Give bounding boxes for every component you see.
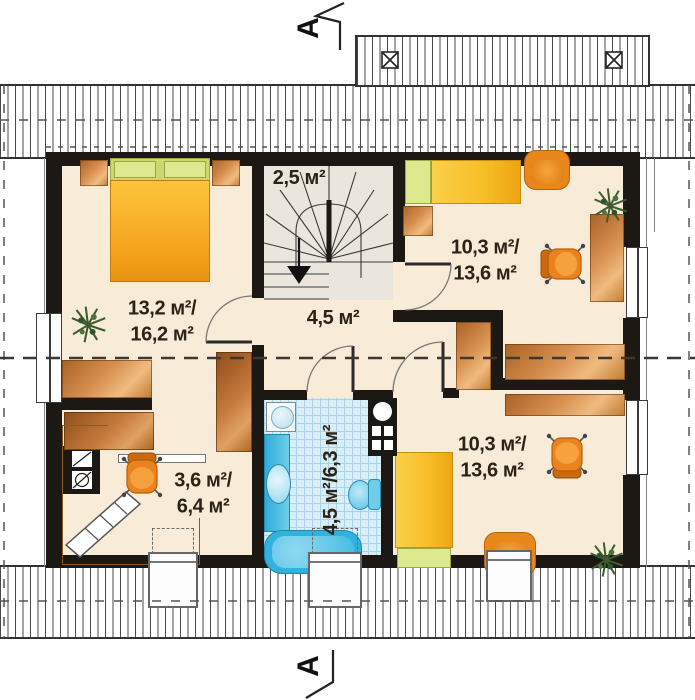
window-right-lower bbox=[626, 400, 648, 475]
washing-machine-drum bbox=[271, 406, 294, 429]
wall-segment bbox=[46, 403, 62, 568]
area-line: 13,2 м²/ bbox=[128, 298, 196, 320]
bathroom-area-label: 4,5 м²/6,3 м² bbox=[318, 425, 344, 535]
window-left bbox=[36, 313, 62, 403]
wall-segment bbox=[252, 166, 264, 298]
nightstand bbox=[212, 160, 240, 186]
wall-segment bbox=[393, 310, 503, 322]
skylight-dashed bbox=[152, 528, 194, 554]
roof-edge bbox=[0, 565, 46, 567]
section-marker-top: A bbox=[292, 17, 326, 39]
tall-wardrobe bbox=[216, 352, 252, 452]
vent-grid-icon bbox=[372, 426, 381, 436]
roof-valley-line bbox=[654, 158, 655, 232]
pillow bbox=[405, 160, 431, 204]
area-line: 6,4 м² bbox=[174, 494, 232, 520]
area-line: 16,2 м² bbox=[128, 322, 196, 348]
vent-grid-icon bbox=[384, 426, 393, 436]
pillow bbox=[164, 161, 206, 178]
long-desk bbox=[505, 344, 625, 380]
wall-segment bbox=[252, 345, 264, 568]
office-shelf bbox=[118, 454, 206, 463]
wall-segment bbox=[62, 398, 152, 410]
bedroom-area-label: 13,2 м²/ 16,2 м² bbox=[128, 296, 196, 349]
nightstand bbox=[403, 206, 433, 236]
area-line: 3,6 м²/ bbox=[174, 470, 232, 492]
roof-hatch-top bbox=[0, 85, 695, 158]
armchair bbox=[524, 150, 570, 190]
pillow bbox=[397, 548, 451, 568]
roof-skylight bbox=[486, 550, 532, 602]
area-line: 10,3 м²/ bbox=[451, 237, 519, 259]
area-line: 10,3 м²/ bbox=[458, 434, 526, 456]
vent-grid-icon bbox=[384, 440, 393, 450]
single-bed bbox=[431, 160, 521, 204]
floor-plan: A A 13,2 м²/ 16,2 м² 2,5 м² 4,5 м² 10,3 … bbox=[0, 0, 695, 700]
window-right-upper bbox=[626, 247, 648, 318]
vent-fan-icon bbox=[373, 402, 392, 421]
section-marker-bottom: A bbox=[292, 655, 326, 677]
nightstand bbox=[80, 160, 108, 186]
facade-line-right bbox=[646, 158, 647, 567]
desk bbox=[505, 394, 625, 416]
wardrobe bbox=[62, 360, 152, 398]
area-line: 13,6 м² bbox=[451, 261, 519, 287]
roof-edge bbox=[640, 565, 695, 567]
sink bbox=[266, 464, 291, 504]
roof-skylight bbox=[148, 552, 198, 608]
wall-segment bbox=[46, 166, 62, 313]
double-bed bbox=[110, 180, 210, 282]
toilet-tank bbox=[368, 479, 381, 510]
pillow bbox=[114, 161, 156, 178]
room-bottom-right-area-label: 10,3 м²/ 13,6 м² bbox=[458, 432, 526, 485]
roof-edge bbox=[0, 84, 356, 86]
area-line: 13,6 м² bbox=[458, 458, 526, 484]
wall-segment bbox=[491, 322, 503, 390]
roof-skylight bbox=[308, 552, 362, 608]
hall-wardrobe bbox=[456, 322, 491, 390]
roof-edge bbox=[0, 637, 695, 639]
hall-area-label: 4,5 м² bbox=[307, 305, 359, 331]
office-area-label: 3,6 м²/ 6,4 м² bbox=[174, 468, 232, 521]
vent-grid-icon bbox=[372, 440, 381, 450]
roof-edge bbox=[640, 157, 695, 159]
roof-dormer bbox=[355, 35, 650, 87]
room-top-right-area-label: 10,3 м²/ 13,6 м² bbox=[451, 235, 519, 288]
roof-edge bbox=[0, 157, 46, 159]
wall-segment bbox=[623, 166, 640, 247]
staircase-area-label: 2,5 м² bbox=[273, 165, 325, 191]
desk bbox=[590, 214, 624, 302]
roof-edge bbox=[649, 84, 695, 86]
single-bed bbox=[395, 452, 453, 548]
